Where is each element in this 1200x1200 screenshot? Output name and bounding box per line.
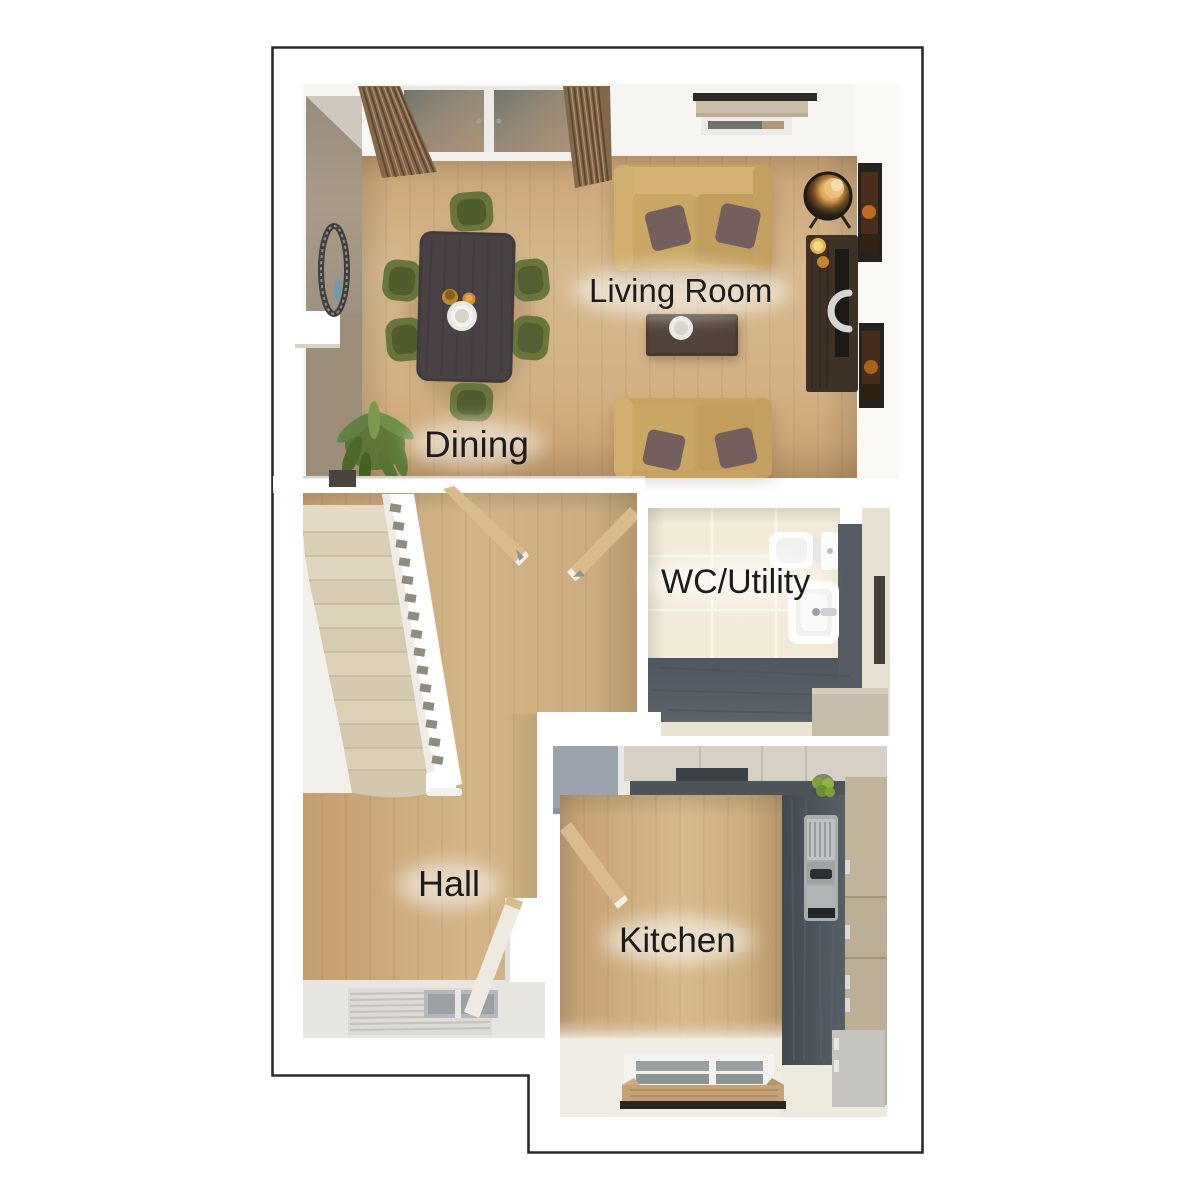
svg-text:Dining: Dining: [424, 424, 529, 465]
svg-text:Kitchen: Kitchen: [619, 921, 736, 960]
svg-text:Hall: Hall: [418, 863, 480, 904]
svg-text:WC/Utility: WC/Utility: [661, 563, 810, 601]
svg-text:Living Room: Living Room: [589, 272, 772, 309]
